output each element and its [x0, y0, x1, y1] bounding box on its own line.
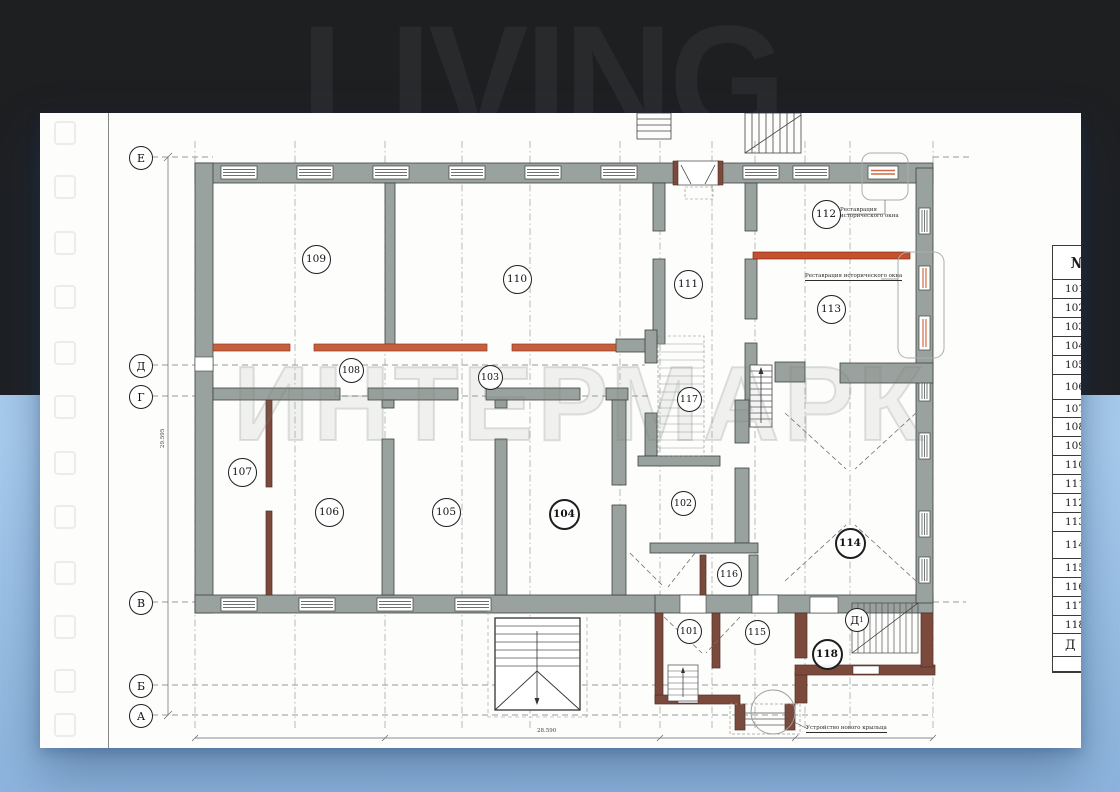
table-row: 102: [1053, 299, 1081, 318]
scan-mark: [54, 615, 76, 639]
table-row: 103: [1053, 318, 1081, 337]
scan-mark: [54, 713, 76, 737]
grid-axis-letter: Г: [137, 391, 144, 404]
room-label-118: 118: [812, 639, 843, 670]
annotation-line: исторического окна: [840, 213, 899, 219]
grid-axis-Д1: Д1: [845, 608, 869, 632]
annex-window-118: [853, 666, 879, 674]
table-row: 110: [1053, 456, 1081, 475]
stair-101: [668, 665, 698, 701]
room-label-111: 111: [674, 270, 703, 299]
table-row: 113: [1053, 513, 1081, 532]
room-label-108: 108: [339, 358, 364, 383]
restored-wall-112-113: [753, 252, 910, 259]
room-label-115: 115: [745, 620, 770, 645]
grid-axis-letter: В: [137, 597, 145, 610]
table-row: 111: [1053, 475, 1081, 494]
table-row: 116: [1053, 578, 1081, 597]
scan-mark: [54, 505, 76, 529]
grid-axis-А: А: [129, 704, 153, 728]
room-label-105: 105: [432, 498, 461, 527]
dimension-left: 29.595: [160, 429, 166, 448]
room-label-109: 109: [302, 245, 331, 274]
table-row: 107: [1053, 400, 1081, 418]
drawing-frame-line: [108, 113, 109, 748]
room-label-102: 102: [671, 491, 696, 516]
room-label-106: 106: [315, 498, 344, 527]
table-row: 114: [1053, 532, 1081, 559]
annotation-restoration-window-113: Реставрация исторического окна: [805, 273, 902, 281]
table-header: №: [1053, 246, 1081, 280]
scan-mark: [54, 231, 76, 255]
grid-axis-letter: Е: [137, 152, 145, 165]
table-row: 118: [1053, 616, 1081, 634]
scan-mark: [54, 175, 76, 199]
annotation-line: Реставрация: [840, 207, 877, 213]
room-label-110: 110: [503, 265, 532, 294]
table-row: 101: [1053, 280, 1081, 299]
dashed-diagonals: [630, 413, 916, 653]
table-row: 108: [1053, 418, 1081, 437]
restoration-callouts: [751, 153, 944, 734]
room-label-103: 103: [478, 365, 503, 390]
scan-mark: [54, 669, 76, 693]
grid-axis-letter: Д: [137, 360, 146, 373]
room-label-101: 101: [677, 619, 702, 644]
scan-mark: [54, 395, 76, 419]
table-row: 104: [1053, 337, 1081, 356]
stair-porch-left: [488, 611, 587, 717]
scan-mark: [54, 121, 76, 145]
scan-mark: [54, 561, 76, 585]
floor-plan-drawing: [40, 113, 1081, 748]
walls-main: [195, 161, 933, 613]
room-label-112: 112: [812, 200, 841, 229]
room-label-113: 113: [817, 295, 846, 324]
floor-plan-card: ИНТЕРМАРК 109110111112113108103117107106…: [40, 113, 1081, 748]
table-row: 117: [1053, 597, 1081, 616]
room-label-114: 114: [835, 528, 866, 559]
scan-mark: [54, 451, 76, 475]
scan-mark: [54, 285, 76, 309]
grid-axis-В: В: [129, 591, 153, 615]
table-row: 112: [1053, 494, 1081, 513]
page: { "watermarks":{"top":"LIVING","plan":"И…: [0, 0, 1120, 792]
table-row: 115: [1053, 559, 1081, 578]
scan-mark: [54, 341, 76, 365]
room-label-104: 104: [549, 499, 580, 530]
table-row: Д: [1053, 634, 1081, 657]
grid-axis-Д: Д: [129, 354, 153, 378]
grid-axis-letter: Б: [137, 680, 145, 693]
table-row: 106: [1053, 375, 1081, 400]
room-label-116: 116: [717, 562, 742, 587]
table-row: 109: [1053, 437, 1081, 456]
dimension-bottom: 28.590: [537, 728, 556, 734]
annotation-new-porch: Устройство нового крыльца: [806, 725, 887, 733]
table-row: [1053, 657, 1081, 672]
grid-axis-letter: Д: [850, 614, 859, 627]
table-rows: 1011021031041051061071081091101111121131…: [1053, 280, 1081, 672]
annotation-restoration-window-112: Реставрация исторического окна: [840, 207, 899, 220]
room-schedule-table: № 10110210310410510610710810911011111211…: [1052, 245, 1081, 673]
exterior-stairs-top: [637, 113, 801, 153]
grid-axis-Б: Б: [129, 674, 153, 698]
table-row: 105: [1053, 356, 1081, 375]
grid-axis-letter: А: [137, 710, 145, 723]
walls-brown-annex: [266, 400, 935, 730]
grid-axis-Г: Г: [129, 385, 153, 409]
room-label-107: 107: [228, 458, 257, 487]
grid-axis-Е: Е: [129, 146, 153, 170]
room-label-117: 117: [677, 387, 702, 412]
